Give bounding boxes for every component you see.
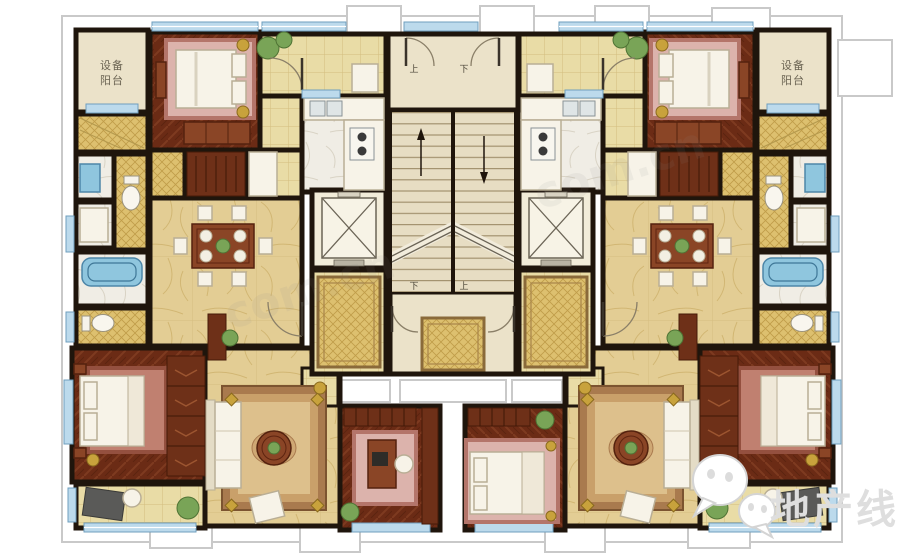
wardrobe-top xyxy=(468,408,530,426)
hall-medallion xyxy=(314,382,326,394)
dresser xyxy=(184,122,250,144)
equipment-balcony-label-right-1: 设备 xyxy=(781,58,805,72)
stair-label-bottom-down: 下 xyxy=(409,282,418,292)
floor-plan-svg: 设备 阳台 设备 阳台 上 下 下 上 com.cn com.cn 地产线 xyxy=(0,0,900,554)
medallion xyxy=(237,106,249,118)
burner xyxy=(358,133,367,142)
chair xyxy=(198,206,212,220)
plant xyxy=(177,497,199,519)
plant xyxy=(276,32,292,48)
medallion xyxy=(546,511,556,521)
pillow xyxy=(474,486,487,510)
lightwell-left xyxy=(340,380,390,402)
living-room-set xyxy=(206,382,326,523)
burner xyxy=(358,147,367,156)
chair xyxy=(174,238,187,254)
desk-chair xyxy=(395,455,413,473)
bathtub xyxy=(82,258,142,286)
sofa-back xyxy=(206,400,215,490)
ledge-right-top xyxy=(838,40,892,96)
bedroom-right-bottom xyxy=(466,408,558,522)
brand-watermark: 地产线 xyxy=(770,487,899,533)
cabinet xyxy=(249,152,277,196)
room-bath-corridor xyxy=(150,150,185,198)
medallion xyxy=(87,454,99,466)
staircase xyxy=(392,110,514,292)
stair-label-top-up: 上 xyxy=(409,64,418,75)
balcony-table xyxy=(123,489,141,507)
core-window xyxy=(404,22,478,31)
medallion xyxy=(546,441,556,451)
study-wardrobe xyxy=(422,408,438,524)
stair-label-top-down: 下 xyxy=(459,65,468,75)
equipment-balcony-label-left-1: 设备 xyxy=(100,58,124,72)
stair-divider xyxy=(451,110,455,292)
chair xyxy=(232,206,246,220)
lightwell-right xyxy=(512,380,562,402)
plant xyxy=(341,503,359,521)
nightstand xyxy=(74,448,86,458)
equipment-balcony-label-right-2: 阳台 xyxy=(781,73,805,87)
sink-basin xyxy=(310,101,325,116)
sofa xyxy=(215,402,241,488)
nightstand xyxy=(74,364,86,374)
blanket-fold xyxy=(522,452,544,514)
chair xyxy=(198,272,212,286)
pillow xyxy=(232,81,246,104)
central-core xyxy=(388,22,518,374)
bench xyxy=(156,62,166,98)
bed xyxy=(176,50,236,108)
centerpiece xyxy=(216,239,230,253)
sink-basin xyxy=(327,101,342,116)
plant xyxy=(536,411,554,429)
balcony-mat xyxy=(82,487,126,520)
pillow xyxy=(232,54,246,77)
corridor-mat xyxy=(422,318,484,370)
lightwell-center xyxy=(400,380,506,402)
elevator-indicator xyxy=(338,192,360,197)
chair xyxy=(259,238,272,254)
equipment-balcony-label-left-2: 阳台 xyxy=(100,73,124,87)
pillow xyxy=(84,413,97,440)
washbasin xyxy=(80,164,100,192)
fridge xyxy=(352,64,378,92)
toilet xyxy=(122,176,140,210)
pillow xyxy=(84,382,97,409)
toilet xyxy=(82,315,114,332)
vanity-counter xyxy=(80,208,108,242)
desk-monitor xyxy=(372,452,388,466)
stair-label-bottom-up: 上 xyxy=(459,281,468,292)
medallion xyxy=(237,39,249,51)
pillow xyxy=(474,458,487,482)
table-plant xyxy=(268,442,280,454)
floor-plan-image: 设备 阳台 设备 阳台 上 下 下 上 com.cn com.cn 地产线 xyxy=(0,0,900,554)
blanket-fold xyxy=(128,376,144,446)
